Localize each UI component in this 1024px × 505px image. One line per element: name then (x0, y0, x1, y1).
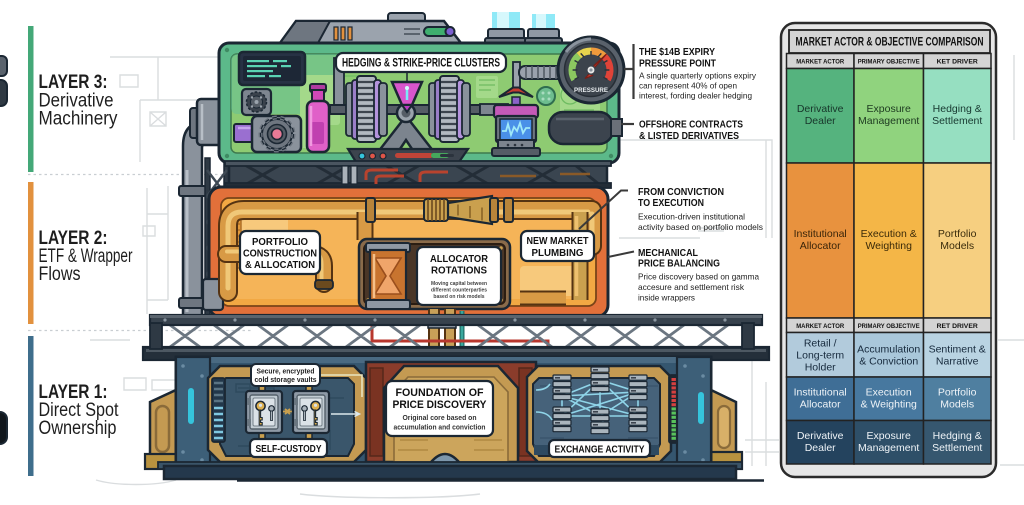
svg-text:Machinery: Machinery (39, 109, 118, 130)
svg-text:Models: Models (940, 240, 974, 252)
svg-text:MARKET ACTOR: MARKET ACTOR (796, 59, 844, 66)
svg-text:cold storage vaults: cold storage vaults (255, 375, 317, 384)
svg-text:PRIMARY OBJECTIVE: PRIMARY OBJECTIVE (858, 323, 920, 330)
svg-text:Narrative: Narrative (936, 356, 979, 368)
svg-text:FOUNDATION OF: FOUNDATION OF (396, 387, 484, 399)
svg-text:Moving capital between: Moving capital between (431, 281, 487, 287)
svg-text:Hedging &: Hedging & (933, 430, 982, 442)
svg-text:activity based on portfolio mo: activity based on portfolio models (638, 222, 763, 232)
svg-text:interest, fording dealer hedgi: interest, fording dealer hedging (639, 91, 752, 101)
svg-text:Retail /: Retail / (804, 338, 837, 350)
svg-text:Management: Management (858, 115, 919, 127)
svg-text:Weighting: Weighting (865, 240, 912, 252)
svg-text:PRICE BALANCING: PRICE BALANCING (638, 258, 720, 270)
svg-text:RET DRIVER: RET DRIVER (937, 323, 978, 330)
svg-text:Hedging &: Hedging & (933, 103, 982, 115)
svg-text:Models: Models (940, 399, 974, 411)
svg-text:PRESSURE POINT: PRESSURE POINT (639, 58, 716, 70)
svg-text:MARKET ACTOR: MARKET ACTOR (796, 323, 844, 330)
svg-text:Settlement: Settlement (932, 115, 982, 127)
svg-text:Exposure: Exposure (867, 430, 912, 442)
svg-text:TO EXECUTION: TO EXECUTION (638, 197, 704, 209)
svg-text:accumulation and conviction: accumulation and conviction (394, 423, 486, 432)
svg-text:PLUMBING: PLUMBING (532, 248, 584, 259)
svg-text:inside wrappers: inside wrappers (638, 293, 695, 303)
svg-text:PORTFOLIO: PORTFOLIO (252, 237, 308, 248)
svg-text:CONSTRUCTION: CONSTRUCTION (243, 249, 317, 260)
svg-text:Long-term: Long-term (796, 350, 844, 362)
svg-text:Dealer: Dealer (805, 115, 836, 127)
svg-text:based on risk models: based on risk models (433, 294, 484, 300)
svg-text:Holder: Holder (805, 362, 836, 374)
svg-text:EXCHANGE ACTIVITY: EXCHANGE ACTIVITY (555, 444, 645, 456)
svg-text:Sentiment &: Sentiment & (929, 344, 986, 356)
svg-text:Execution &: Execution & (861, 228, 917, 240)
svg-text:Exposure: Exposure (867, 103, 912, 115)
svg-text:NEW MARKET: NEW MARKET (527, 236, 589, 247)
svg-text:PRICE DISCOVERY: PRICE DISCOVERY (393, 399, 488, 411)
svg-text:Accumulation: Accumulation (857, 344, 920, 356)
svg-text:& LISTED DERIVATIVES: & LISTED DERIVATIVES (639, 130, 739, 142)
svg-text:Allocator: Allocator (800, 240, 841, 252)
svg-text:Institutional: Institutional (794, 387, 847, 399)
svg-text:HEDGING & STRIKE-PRICE CLUSTER: HEDGING & STRIKE-PRICE CLUSTERS (342, 58, 500, 70)
svg-text:& Conviction: & Conviction (859, 356, 918, 368)
svg-text:& ALLOCATION: & ALLOCATION (245, 260, 315, 271)
svg-text:PRIMARY OBJECTIVE: PRIMARY OBJECTIVE (858, 59, 920, 66)
svg-text:can represent 40% of open: can represent 40% of open (639, 81, 737, 91)
svg-text:Institutional: Institutional (794, 228, 847, 240)
svg-text:ALLOCATOR: ALLOCATOR (430, 254, 489, 265)
svg-text:PRESSURE: PRESSURE (574, 87, 608, 94)
svg-text:Derivative: Derivative (797, 103, 844, 115)
svg-text:& Weighting: & Weighting (860, 399, 917, 411)
svg-text:THE $14B EXPIRY: THE $14B EXPIRY (639, 46, 715, 58)
svg-text:Original core based on: Original core based on (403, 413, 477, 422)
svg-text:Portfolio: Portfolio (938, 228, 977, 240)
svg-text:Price discovery based on gamma: Price discovery based on gamma (638, 272, 759, 282)
svg-text:Portfolio: Portfolio (938, 387, 977, 399)
svg-text:ROTATIONS: ROTATIONS (431, 266, 487, 277)
svg-text:Execution: Execution (866, 387, 912, 399)
svg-text:OFFSHORE CONTRACTS: OFFSHORE CONTRACTS (639, 119, 743, 131)
svg-text:Dealer: Dealer (805, 442, 836, 454)
svg-text:Flows: Flows (39, 264, 81, 285)
svg-text:Derivative: Derivative (797, 430, 844, 442)
svg-text:A single quarterly options exp: A single quarterly options expiry (639, 71, 757, 81)
svg-text:Management: Management (858, 442, 919, 454)
svg-text:MARKET ACTOR & OBJECTIVE COMPA: MARKET ACTOR & OBJECTIVE COMPARISON (796, 37, 984, 49)
svg-text:SELF-CUSTODY: SELF-CUSTODY (256, 443, 322, 455)
svg-text:Allocator: Allocator (800, 399, 841, 411)
svg-text:Ownership: Ownership (39, 418, 117, 439)
svg-text:different counterparties: different counterparties (431, 288, 487, 294)
svg-text:Execution-driven institutional: Execution-driven institutional (638, 212, 745, 222)
svg-text:Settlement: Settlement (932, 442, 982, 454)
svg-text:KET DRIVER: KET DRIVER (937, 59, 978, 66)
svg-text:accesure and settlement risk: accesure and settlement risk (638, 282, 745, 292)
